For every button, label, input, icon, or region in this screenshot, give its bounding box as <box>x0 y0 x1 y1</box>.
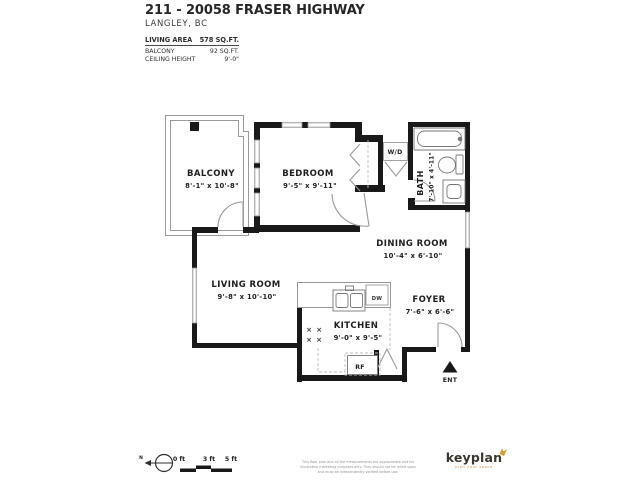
floorplan-page: 211 - 20058 FRASER HIGHWAY LANGLEY, BC L… <box>0 0 640 480</box>
wall <box>402 347 407 382</box>
toilet-bowl <box>439 157 456 173</box>
sliding-door <box>255 168 259 188</box>
wall <box>378 137 383 192</box>
room-label-kitchen: KITCHEN <box>334 321 379 331</box>
burner-icon: × <box>306 336 312 344</box>
wall <box>192 227 197 268</box>
window <box>282 123 302 127</box>
keyplan-logo: keyplan plan your space <box>444 451 504 469</box>
north-label: N <box>139 455 143 461</box>
keyplan-tagline: plan your space <box>444 465 504 469</box>
sliding-door <box>255 140 259 163</box>
wall <box>254 122 260 140</box>
room-label-foyer: FOYER <box>412 295 445 305</box>
wall <box>254 188 260 193</box>
wall <box>192 343 302 348</box>
scale-segment <box>180 469 196 473</box>
wall <box>408 205 470 210</box>
toilet-tank <box>456 155 463 174</box>
burner-icon: × <box>306 326 312 334</box>
wall <box>465 248 470 352</box>
entry-door-swing <box>438 323 462 347</box>
bathtub-faucet <box>458 137 462 141</box>
room-label-balcony: BALCONY <box>187 169 235 179</box>
wall <box>297 375 407 381</box>
entry-label: ENT <box>443 377 458 384</box>
window <box>466 212 469 248</box>
wd-closet-bifold <box>385 162 407 176</box>
fridge-label: RF <box>355 364 365 371</box>
room-dims-dining: 10'-4" x 6'-10" <box>384 252 443 260</box>
bathtub-basin <box>418 131 462 147</box>
scale-segment <box>196 466 211 470</box>
bedroom-door-swing <box>332 194 369 226</box>
wall <box>465 122 470 212</box>
wall <box>297 308 302 382</box>
wd-label: W/D <box>387 149 402 156</box>
north-arrow-head <box>145 460 152 466</box>
keyplan-mark-icon <box>499 448 508 457</box>
balcony-post <box>190 122 199 131</box>
wall <box>254 225 360 232</box>
bedroom-closet-bifold <box>350 144 360 166</box>
burner-icon: × <box>316 336 322 344</box>
room-dims-balcony: 8'-1" x 10'-8" <box>185 182 239 190</box>
room-dims-foyer: 7'-6" x 6'-6" <box>406 308 455 316</box>
window <box>193 268 196 323</box>
wall <box>408 122 470 127</box>
room-dims-bedroom: 9'-5" x 9'-11" <box>283 182 337 190</box>
wall <box>408 122 413 180</box>
wall <box>243 227 259 233</box>
scale-tick-0: 0 ft <box>173 456 185 463</box>
entry-arrow-icon <box>443 361 458 373</box>
keyplan-mark-shape <box>500 449 508 457</box>
keyplan-logo-text: keyplan <box>444 451 504 464</box>
floorplan-drawing: × × × × ENT BALCONY 8'-1" x 10'-8" BEDRO… <box>0 0 640 480</box>
scale-tick-5: 5 ft <box>225 456 237 463</box>
room-dims-living: 9'-8" x 10'-10" <box>218 293 277 301</box>
sliding-door <box>255 193 259 216</box>
room-label-dining: DINING ROOM <box>376 239 447 249</box>
wall <box>402 347 436 352</box>
room-dims-bath: 7'-10" x 4'-11" <box>430 152 436 201</box>
wall <box>254 163 260 168</box>
wall <box>408 198 415 210</box>
bedroom-door-leaf <box>364 193 369 226</box>
room-label-living: LIVING ROOM <box>211 280 280 290</box>
stove-burners: × × × × <box>306 326 322 344</box>
wall <box>302 122 308 128</box>
dishwasher-box <box>366 285 388 305</box>
scale-segment <box>211 469 232 473</box>
scale-bar: N 0 ft 3 ft 5 ft <box>139 455 237 473</box>
room-label-bath: BATH <box>416 170 425 195</box>
window <box>308 123 330 127</box>
disclaimer-text: This floor plan and all the measurements… <box>299 460 417 474</box>
dishwasher-label: DW <box>372 296 383 302</box>
bath-sink <box>447 185 461 199</box>
kitchen-cabinet-dashed <box>318 348 345 372</box>
room-label-bedroom: BEDROOM <box>282 169 334 179</box>
room-dims-kitchen: 9'-0" x 9'-5" <box>334 334 383 342</box>
burner-icon: × <box>316 326 322 334</box>
scale-tick-3: 3 ft <box>203 456 215 463</box>
balcony-door-swing <box>218 202 243 227</box>
